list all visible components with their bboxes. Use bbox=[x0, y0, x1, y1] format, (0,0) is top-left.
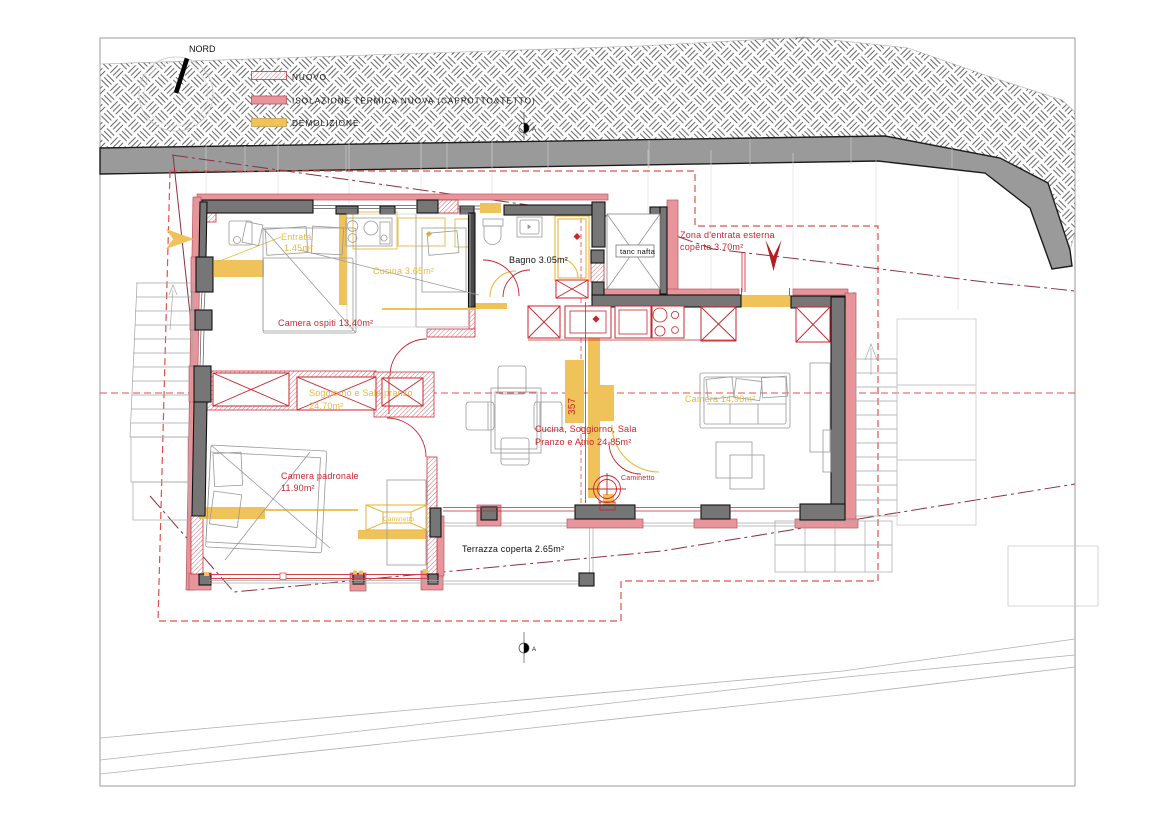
svg-text:Terrazza coperta 2.65m²: Terrazza coperta 2.65m² bbox=[462, 544, 564, 554]
svg-text:tanc nafta: tanc nafta bbox=[620, 247, 656, 256]
svg-text:NUOVO: NUOVO bbox=[292, 73, 327, 82]
svg-text:Bagno 3.05m²: Bagno 3.05m² bbox=[509, 255, 568, 265]
svg-text:1.45m²: 1.45m² bbox=[284, 243, 313, 253]
svg-text:DEMOLIZIONE: DEMOLIZIONE bbox=[292, 119, 359, 128]
svg-text:Soggiorno e Sala pranzo: Soggiorno e Sala pranzo bbox=[309, 388, 413, 398]
svg-text:Camera 14.90m²: Camera 14.90m² bbox=[685, 394, 755, 404]
svg-text:A: A bbox=[532, 127, 536, 133]
svg-text:Caminetto: Caminetto bbox=[383, 516, 415, 523]
svg-text:Cucina 3.65m²: Cucina 3.65m² bbox=[373, 266, 434, 276]
svg-text:11.90m²: 11.90m² bbox=[281, 483, 315, 493]
svg-text:24.70m²: 24.70m² bbox=[309, 401, 343, 411]
svg-text:NORD: NORD bbox=[189, 44, 216, 54]
svg-text:A: A bbox=[532, 647, 536, 653]
svg-text:Pranzo e Atrio 24.85m²: Pranzo e Atrio 24.85m² bbox=[535, 437, 631, 447]
svg-text:Cucina, Soggiorno, Sala: Cucina, Soggiorno, Sala bbox=[535, 424, 637, 434]
svg-text:ISOLAZIONE TERMICA NUOVA (CAPP: ISOLAZIONE TERMICA NUOVA (CAPPOTTO&TETTO… bbox=[292, 97, 536, 106]
svg-text:Caminetto: Caminetto bbox=[621, 475, 655, 482]
svg-text:Zona d'entrata esterna: Zona d'entrata esterna bbox=[680, 230, 775, 240]
svg-text:357: 357 bbox=[567, 397, 578, 415]
svg-text:Entrata: Entrata bbox=[281, 232, 311, 242]
svg-text:Camera ospiti 13.40m²: Camera ospiti 13.40m² bbox=[278, 318, 373, 328]
svg-text:coperta 3.70m²: coperta 3.70m² bbox=[680, 242, 743, 252]
svg-text:Camera padronale: Camera padronale bbox=[281, 471, 359, 481]
